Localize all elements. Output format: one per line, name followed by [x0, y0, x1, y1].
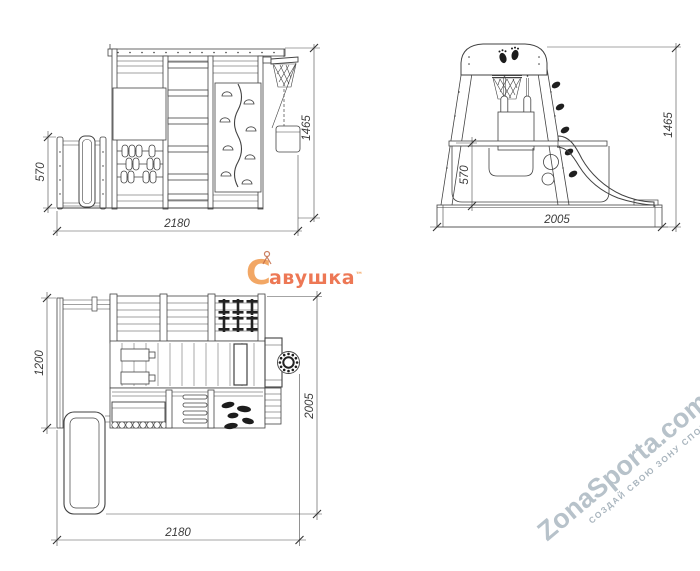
side-view: 570 2005 1465 [430, 43, 681, 232]
plan-basketball [265, 338, 300, 387]
hoop-rim [271, 57, 298, 64]
front-view: 570 1465 2180 [35, 44, 320, 236]
plan-arm [63, 300, 110, 309]
abacus [117, 145, 163, 183]
side-climbing-holds [551, 80, 579, 179]
dim-side-1465: 1465 [663, 112, 675, 138]
logo-swing-figure-icon [260, 250, 274, 266]
brand-logo: Савушка™ [246, 256, 366, 304]
ball-box [276, 126, 300, 152]
hoop-net [273, 64, 296, 87]
logo-trademark: ™ [355, 271, 363, 280]
front-side-module [57, 136, 106, 209]
swing [489, 76, 534, 176]
swing-seat [489, 148, 533, 176]
plan-top-band [110, 294, 265, 343]
plan-bench [112, 402, 165, 422]
dim-side-570: 570 [459, 165, 471, 185]
plan-view: 1200 2180 2005 [34, 291, 322, 546]
front-panel [113, 88, 166, 140]
dim-plan-2180: 2180 [164, 527, 191, 539]
plan-deck [110, 341, 265, 388]
side-basketball-net [492, 76, 522, 100]
dim-plan-2005: 2005 [304, 393, 316, 420]
plan-left-posts [57, 298, 63, 428]
logo-text: авушка [269, 267, 355, 289]
basketball-hoop [263, 49, 300, 152]
dim-front-2180: 2180 [163, 218, 190, 230]
ladder [168, 62, 208, 200]
porthole-wheel-2 [542, 173, 554, 185]
plan-slide [64, 412, 110, 514]
climbing-wall [215, 83, 261, 192]
dim-plan-1200: 1200 [34, 350, 46, 376]
dim-side-2005: 2005 [543, 214, 570, 226]
blueprint-canvas: 570 1465 2180 [0, 0, 700, 571]
side-header [461, 44, 547, 75]
plan-lower-band [110, 388, 281, 430]
dim-front-570: 570 [35, 162, 47, 182]
plan-ring [283, 357, 293, 367]
dim-front-1465: 1465 [301, 115, 313, 141]
